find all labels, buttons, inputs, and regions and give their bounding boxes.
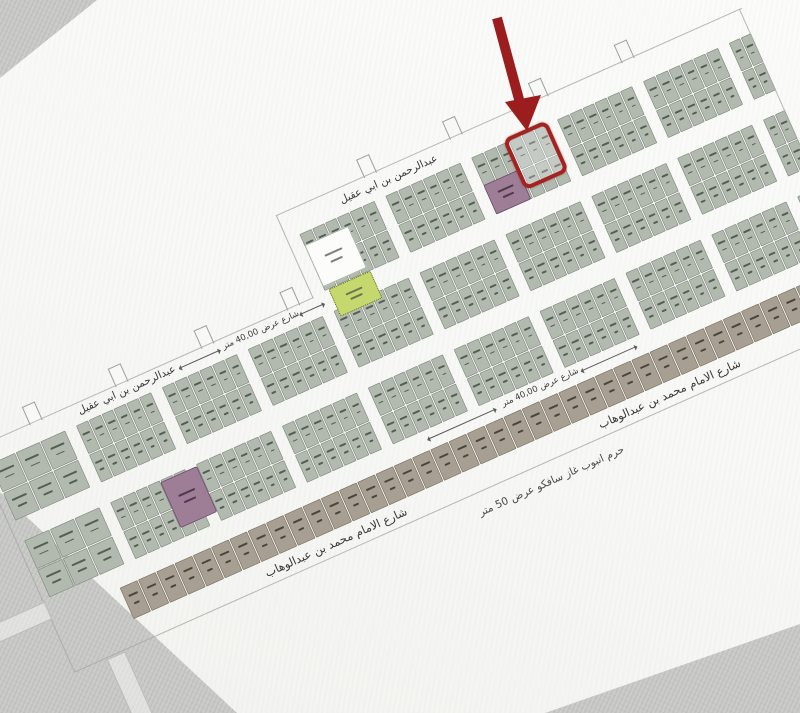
plot-block [505, 201, 605, 291]
plot-block [368, 354, 468, 444]
plot-block [282, 393, 382, 483]
plot-block [625, 240, 725, 330]
plot-block [540, 278, 640, 368]
plot-block [591, 163, 691, 253]
dimension-arrow [300, 303, 324, 314]
plot-block [711, 201, 800, 291]
street-extension-line [0, 602, 53, 665]
street-extension-line [107, 651, 158, 713]
plan-photo: عبدالرحمن بن ابي عقيل عبدالرحمن بن ابي ع… [0, 0, 800, 713]
plot-block [557, 86, 657, 176]
plot-block [420, 239, 520, 329]
boundary-line [276, 215, 314, 299]
plot-block [0, 431, 90, 521]
plot-block [24, 507, 124, 597]
plot-block [643, 48, 743, 138]
plot-block [677, 125, 777, 215]
